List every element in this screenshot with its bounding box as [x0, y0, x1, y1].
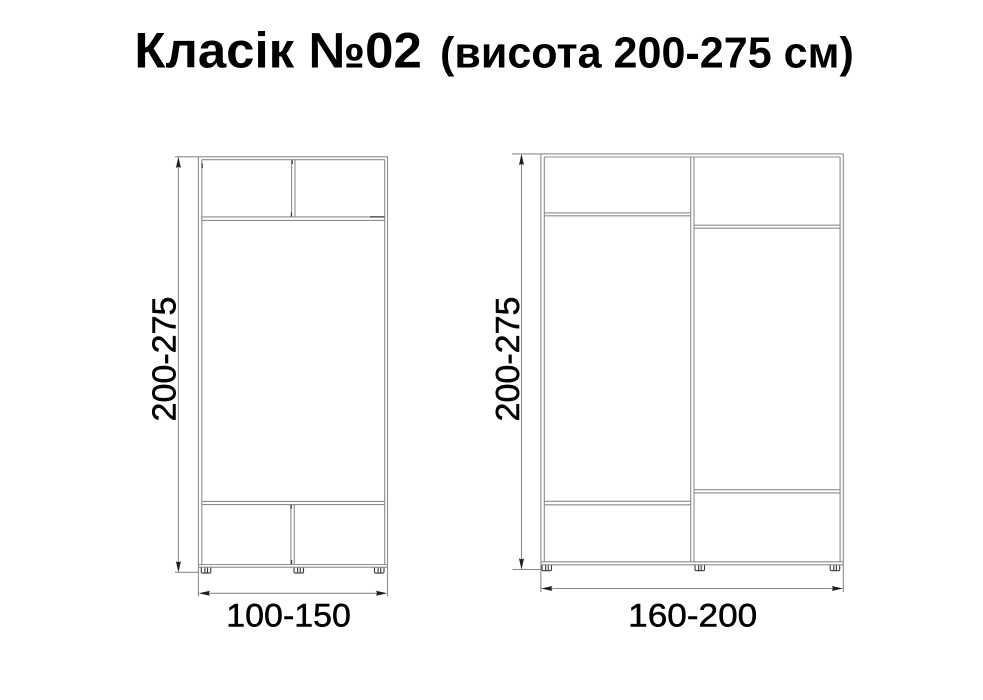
svg-text:(висота 200-275 см): (висота 200-275 см): [440, 29, 854, 78]
svg-text:200-275: 200-275: [146, 297, 183, 422]
svg-text:100-150: 100-150: [226, 598, 351, 634]
svg-text:Класік №02: Класік №02: [134, 23, 421, 79]
svg-text:160-200: 160-200: [628, 598, 757, 634]
svg-text:200-275: 200-275: [489, 297, 526, 422]
